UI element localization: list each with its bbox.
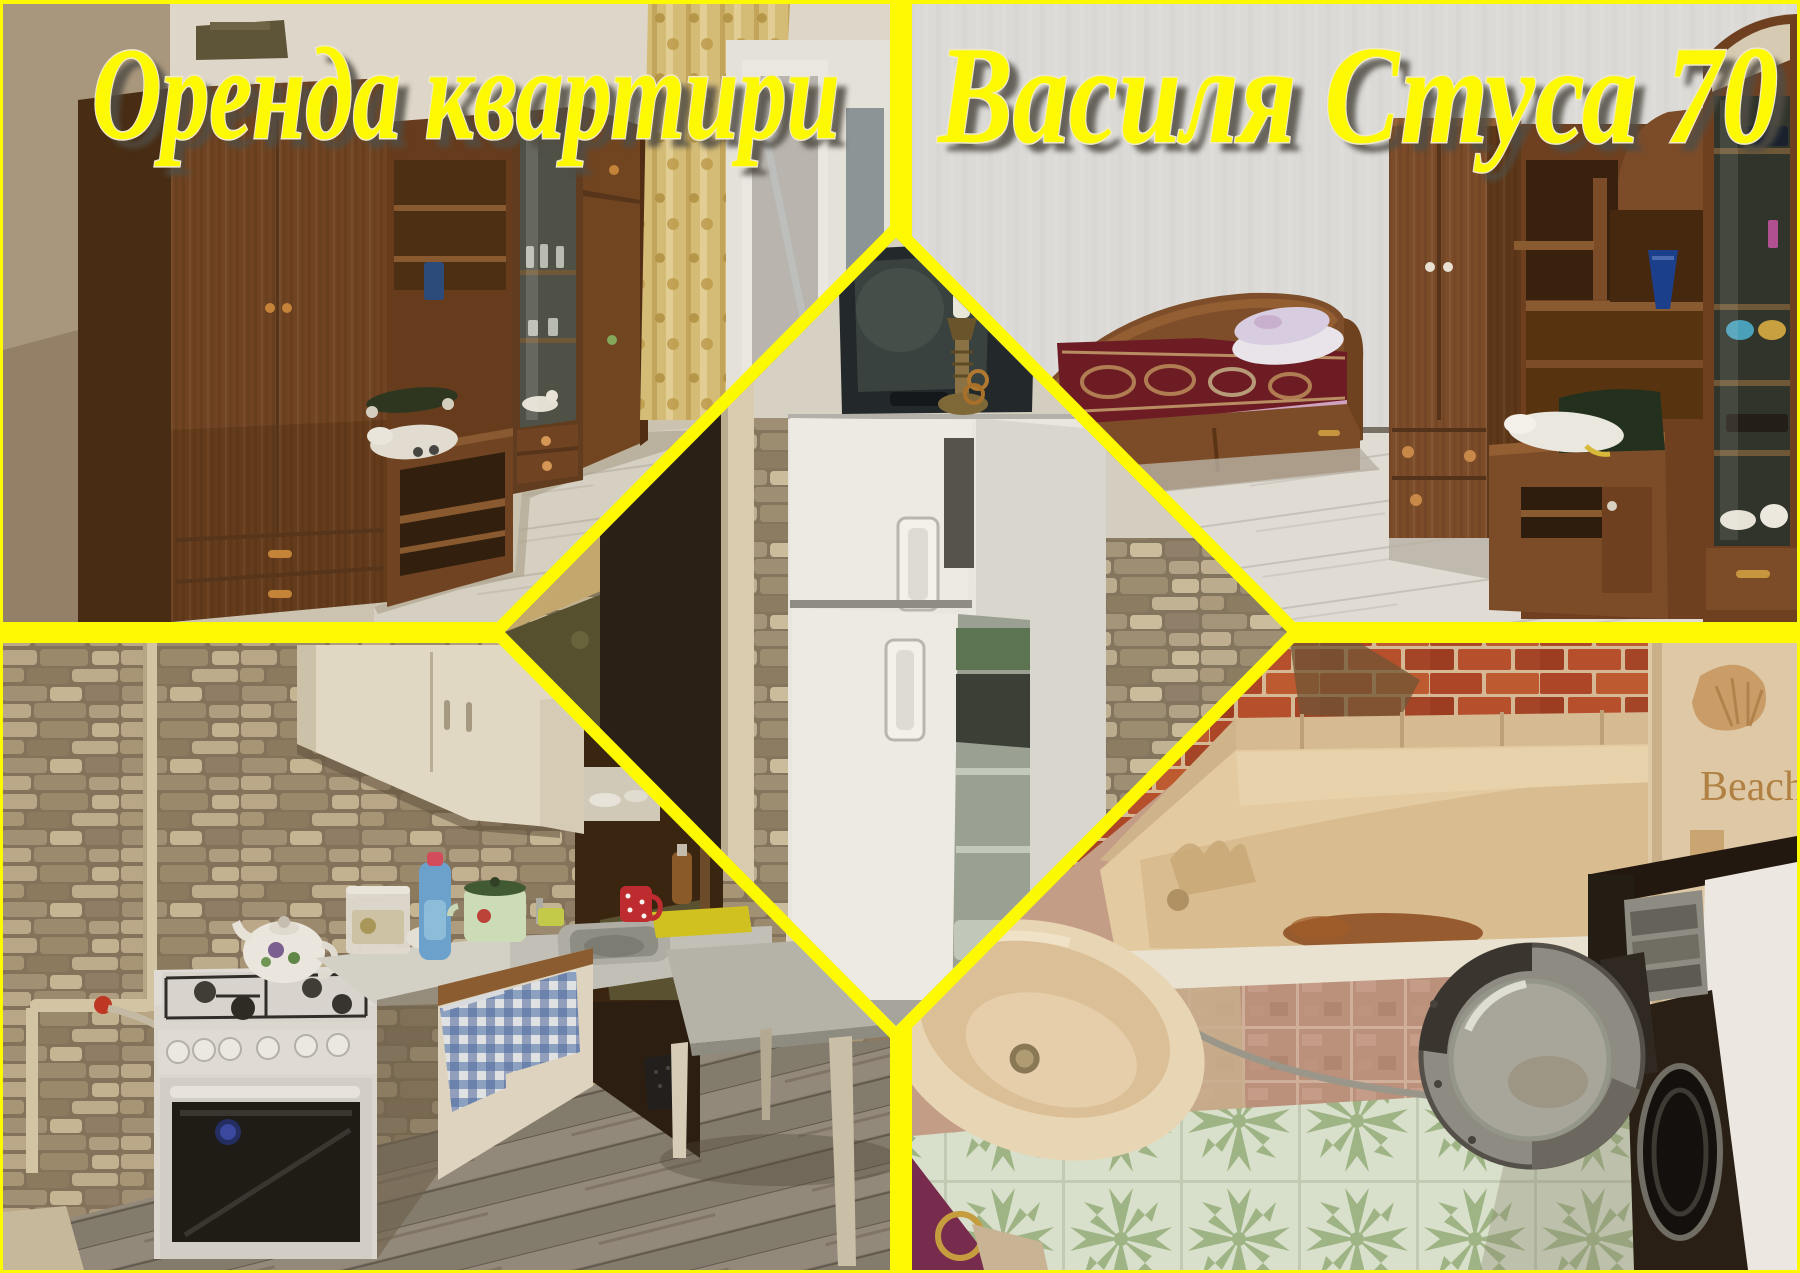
svg-text:Василя Стуса 70: Василя Стуса 70 bbox=[936, 18, 1778, 173]
svg-text:Оренда квартири: Оренда квартири bbox=[92, 20, 840, 167]
